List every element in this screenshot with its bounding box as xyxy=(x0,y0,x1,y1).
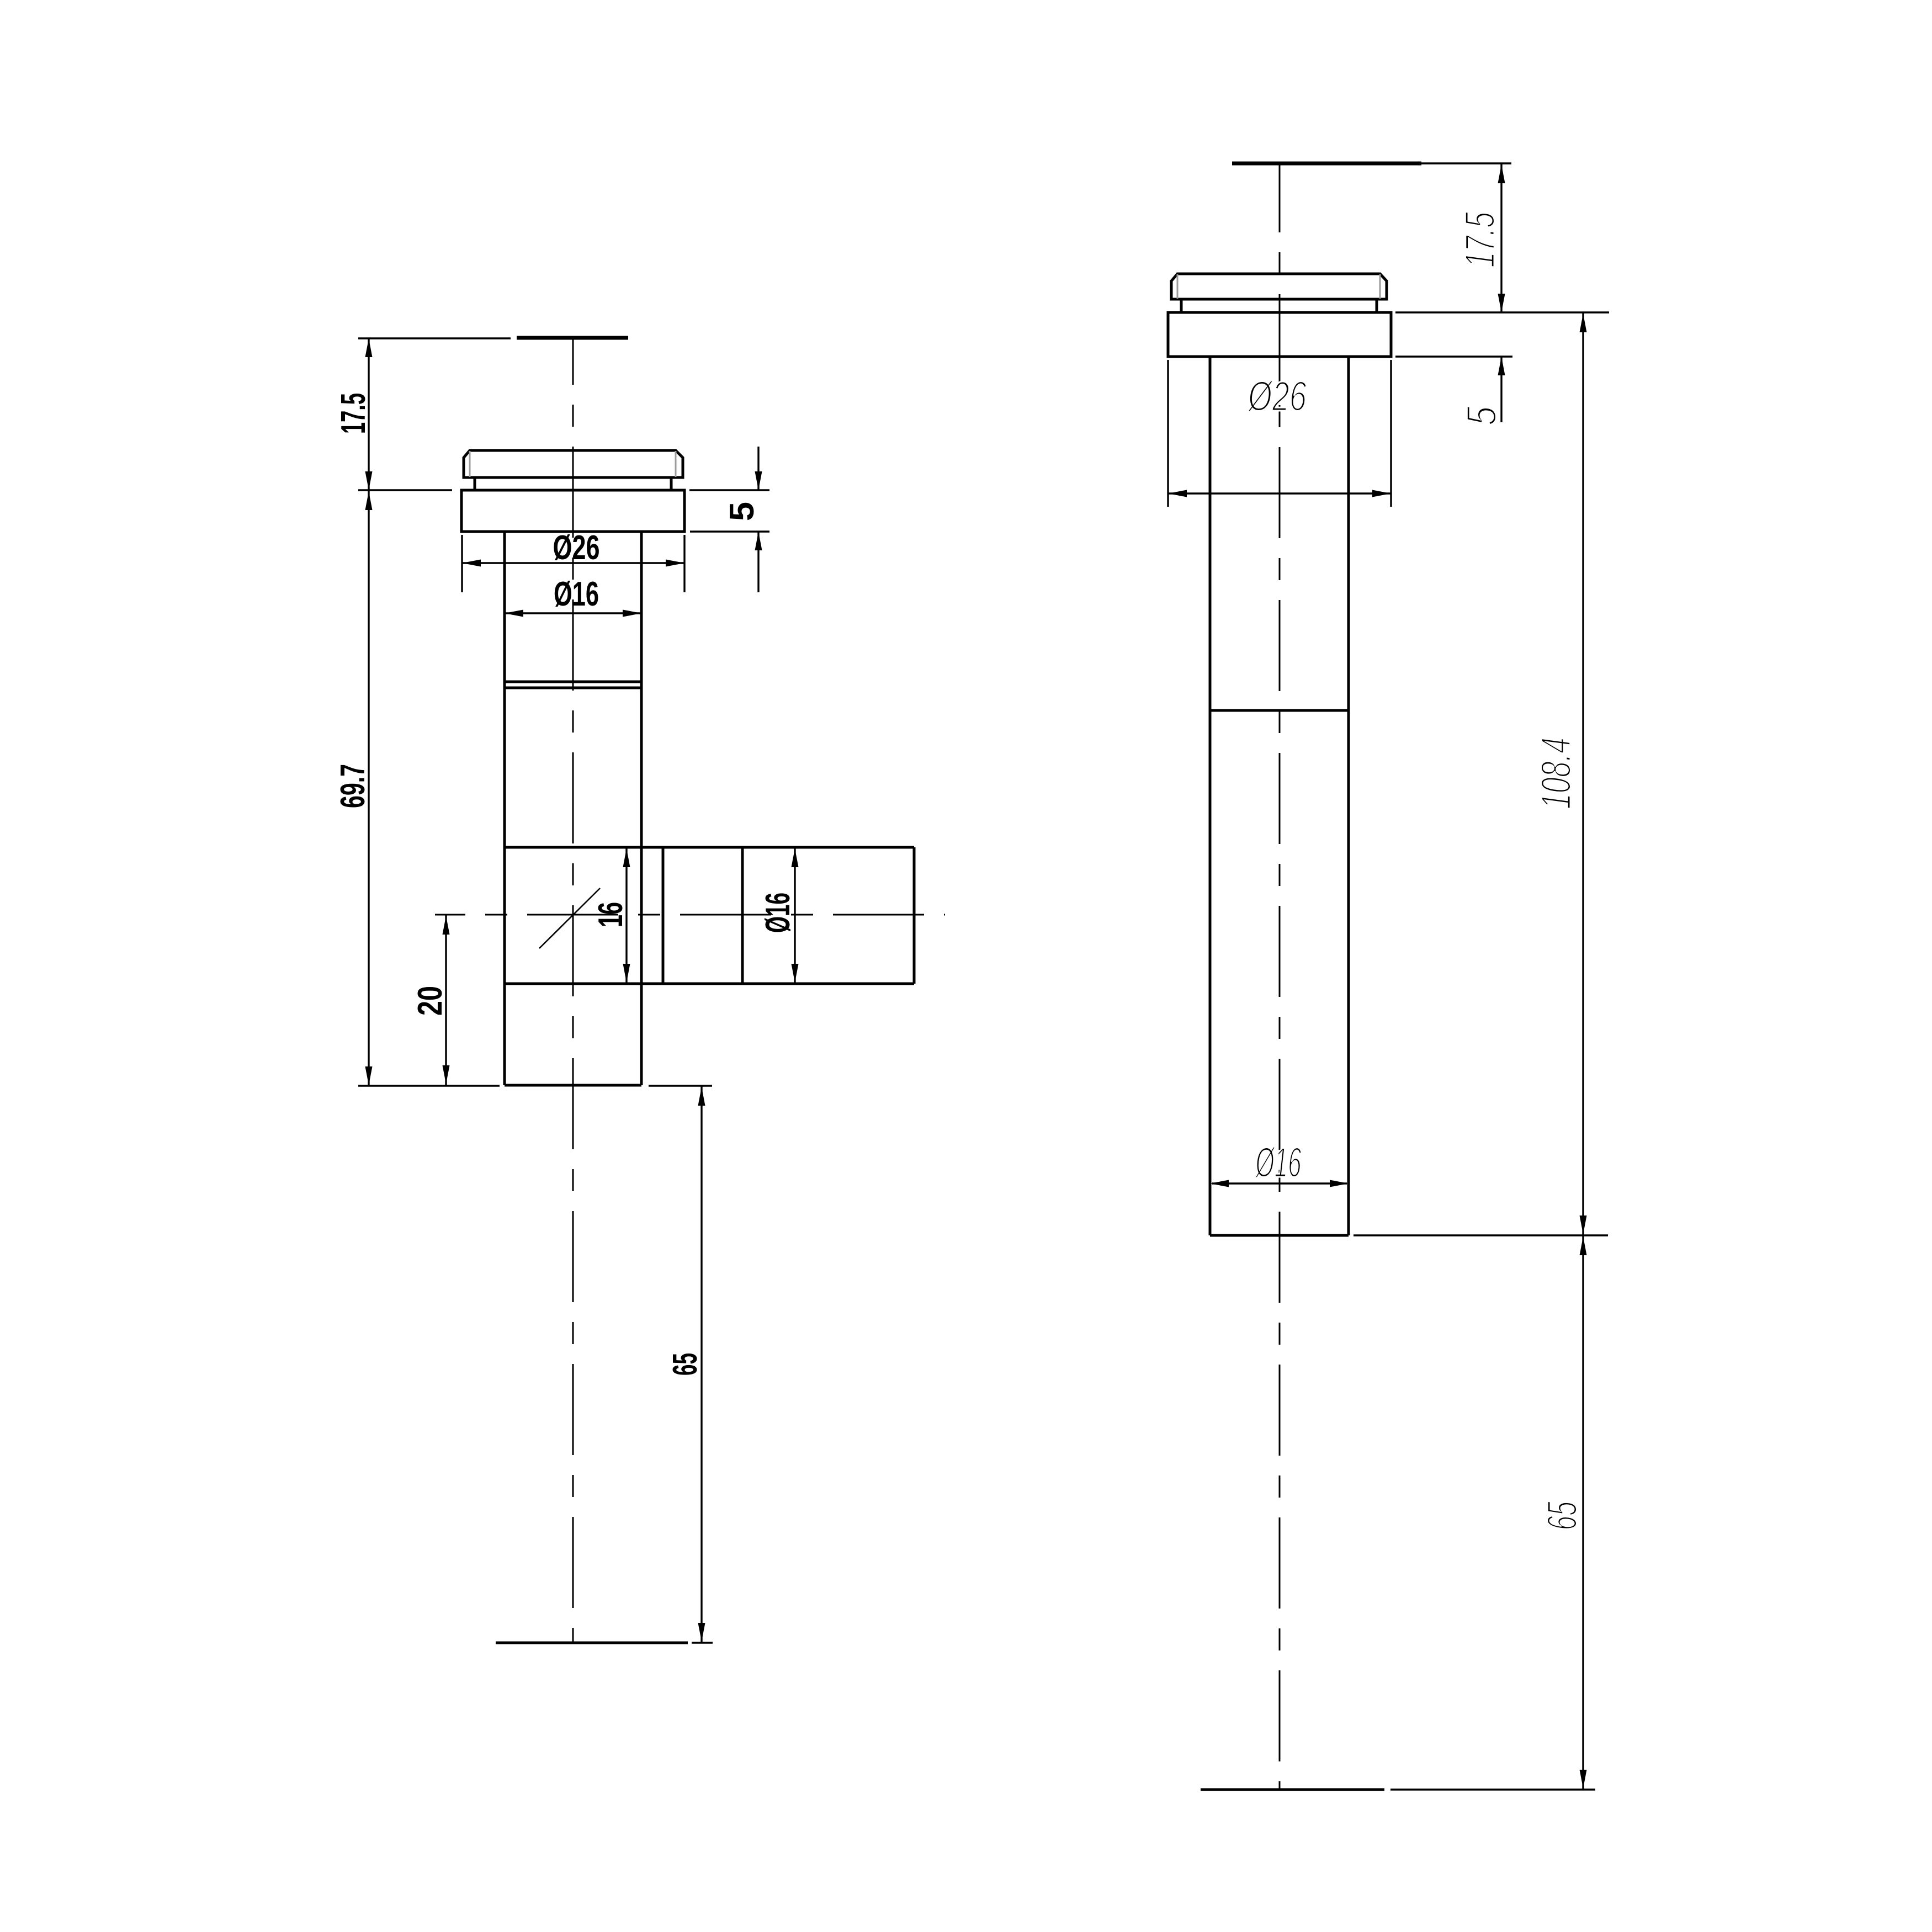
svg-text:69.7: 69.7 xyxy=(334,764,372,808)
svg-text:108.4: 108.4 xyxy=(1533,737,1580,809)
svg-text:5: 5 xyxy=(1458,406,1505,426)
svg-text:Ø16: Ø16 xyxy=(554,575,599,613)
svg-text:Ø16: Ø16 xyxy=(759,893,797,933)
svg-text:Ø26: Ø26 xyxy=(553,529,600,567)
svg-text:17.5: 17.5 xyxy=(1457,212,1504,268)
svg-text:5: 5 xyxy=(723,502,761,521)
svg-text:Ø16: Ø16 xyxy=(1255,1139,1302,1186)
svg-text:Ø26: Ø26 xyxy=(1247,373,1307,420)
svg-text:16: 16 xyxy=(592,902,630,927)
svg-text:65: 65 xyxy=(666,1353,704,1376)
svg-text:17.5: 17.5 xyxy=(335,393,373,434)
svg-text:20: 20 xyxy=(411,986,449,1016)
svg-text:65: 65 xyxy=(1539,1501,1586,1530)
